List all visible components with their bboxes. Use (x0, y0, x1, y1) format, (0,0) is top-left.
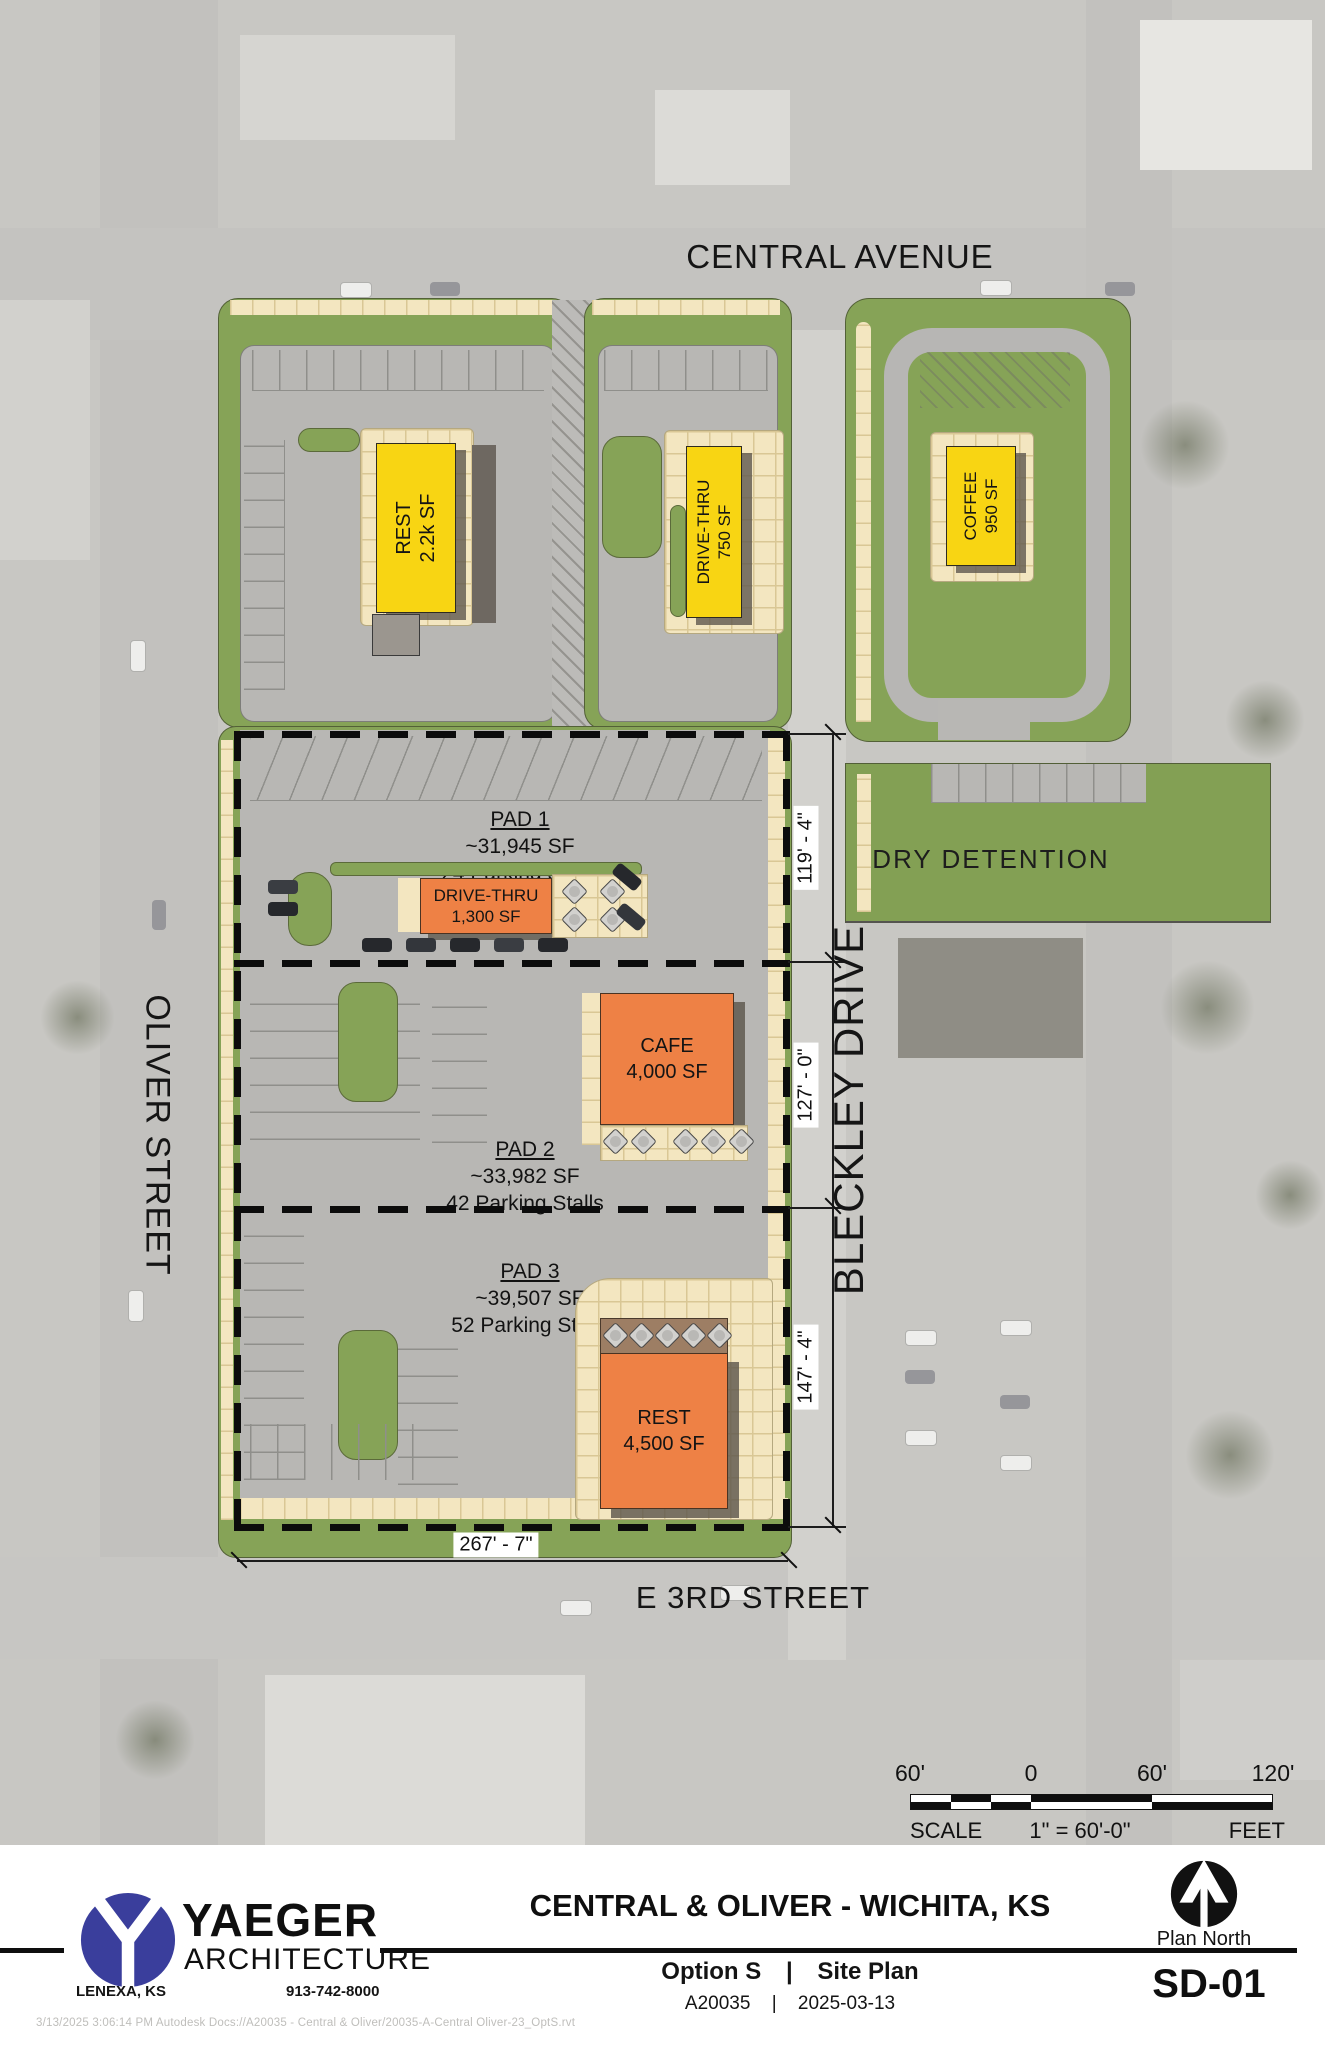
building-drive-thru-pad1-label: DRIVE-THRU 1,300 SF (421, 879, 551, 933)
aerial-building (655, 90, 790, 185)
building-size: 2.2k SF (416, 494, 440, 563)
building-rest-large-label: REST 4,500 SF (601, 1354, 727, 1508)
car (905, 1430, 937, 1446)
car (560, 1600, 592, 1616)
building-drive-thru-pad1: DRIVE-THRU 1,300 SF (420, 878, 552, 934)
pad-area: ~31,945 SF (380, 833, 660, 860)
building-size: 4,500 SF (623, 1431, 704, 1457)
car (1000, 1320, 1032, 1336)
scale-ratio: 1" = 60'-0" (1029, 1818, 1130, 1844)
car (430, 282, 460, 296)
car (494, 938, 524, 952)
sidewalk (857, 774, 871, 912)
scale-bar-graphic (910, 1794, 1273, 1810)
tree (1225, 680, 1305, 760)
building-drive-thru-small: DRIVE-THRU 750 SF (686, 446, 742, 618)
parking-stalls (432, 998, 487, 1143)
street-label-e-3rd-street: E 3RD STREET (636, 1580, 870, 1616)
landscape-island (298, 428, 360, 452)
car (152, 900, 166, 930)
car (268, 880, 298, 894)
tree (1160, 960, 1255, 1055)
yaeger-logo (80, 1892, 176, 1988)
tree (40, 980, 115, 1055)
car (905, 1330, 937, 1346)
sheet-name: Site Plan (817, 1958, 918, 1985)
building-coffee-label: COFFEE 950 SF (960, 472, 1002, 541)
building-size: 750 SF (714, 480, 735, 585)
scale-word: SCALE (910, 1818, 982, 1844)
landscape-island (338, 982, 398, 1102)
project-title: CENTRAL & OLIVER - WICHITA, KS (480, 1888, 1100, 1924)
building-sidewalk (398, 878, 422, 932)
sidewalk-west (221, 740, 233, 1520)
parking-stalls (931, 764, 1146, 803)
dim-pad2-depth: 127' - 0" (794, 1042, 819, 1127)
number-date-line: A20035 | 2025-03-13 (480, 1993, 1100, 2015)
plan-north-icon (1168, 1858, 1240, 1930)
parking-stalls (244, 440, 285, 690)
pad-name: PAD 1 (380, 806, 660, 833)
option-sheet-line: Option S | Site Plan (480, 1958, 1100, 1986)
landscape-island (670, 505, 686, 617)
dry-detention-label: DRY DETENTION (846, 844, 1136, 875)
sheet-number: SD-01 (1124, 1962, 1294, 2007)
car (130, 640, 146, 672)
parking-stalls (250, 1424, 430, 1480)
firm-city: LENEXA, KS (76, 1983, 166, 2000)
firm-phone: 913-742-8000 (286, 1983, 379, 2000)
tree (1185, 1410, 1275, 1500)
building-sidewalk (582, 993, 600, 1145)
option-label: Option S (661, 1958, 761, 1985)
car (1000, 1395, 1030, 1409)
title-block: YAEGER ARCHITECTURE LENEXA, KS 913-742-8… (0, 1845, 1325, 2048)
building-rest-small: REST 2.2k SF (376, 443, 456, 613)
scale-bar-row (911, 1795, 1272, 1802)
trash-enclosure (372, 614, 420, 656)
aerial-building (1140, 20, 1312, 170)
car (1000, 1455, 1032, 1471)
dim-pad1-depth: 119' - 4" (794, 806, 819, 890)
tree (1255, 1160, 1325, 1230)
car (980, 280, 1012, 296)
pad-divider-2 (234, 1206, 790, 1213)
scale-tick-label: 120' (1252, 1760, 1295, 1787)
parking-stalls (252, 350, 544, 391)
scale-tick-label: 60' (1137, 1760, 1167, 1787)
drive-thru-lane-shadow (472, 445, 496, 623)
building-cafe-label: CAFE 4,000 SF (601, 994, 733, 1124)
firm-type: ARCHITECTURE (184, 1943, 431, 1977)
building-name: DRIVE-THRU (693, 480, 714, 585)
dim-line-horizontal (237, 1560, 788, 1562)
property-line-north (234, 731, 790, 738)
dry-detention-area: DRY DETENTION (845, 763, 1271, 923)
car (340, 282, 372, 298)
sidewalk (230, 300, 560, 315)
separator: | (786, 1958, 793, 1985)
angled-parking-stalls (250, 736, 762, 801)
car (450, 938, 480, 952)
car (128, 1290, 144, 1322)
sidewalk (592, 300, 780, 315)
building-drive-thru-small-label: DRIVE-THRU 750 SF (693, 480, 735, 585)
aerial-building (0, 300, 90, 560)
pad-area: ~33,982 SF (380, 1163, 670, 1190)
building-name: REST (392, 494, 416, 563)
building-size: 4,000 SF (626, 1059, 707, 1085)
building-name: REST (637, 1405, 690, 1431)
dim-pad3-depth: 147' - 4" (794, 1324, 819, 1409)
loop-exit-stub (938, 700, 1030, 740)
car (905, 1370, 935, 1384)
site-plan-sheet: REST 2.2k SF DRIVE-THRU 750 SF (0, 0, 1325, 2048)
building-rest-large: REST 4,500 SF (600, 1353, 728, 1509)
pad-divider-1 (234, 960, 790, 967)
street-label-central-avenue: CENTRAL AVENUE (560, 238, 1120, 276)
dim-site-width: 267' - 7" (453, 1533, 538, 1558)
street-label-oliver-street: OLIVER STREET (138, 994, 177, 1275)
sidewalk (856, 322, 871, 722)
loop-hatch (920, 352, 1070, 408)
sheet-date: 2025-03-13 (798, 1993, 895, 2014)
parking-stalls (604, 350, 768, 391)
car (268, 902, 298, 916)
tree (1140, 400, 1230, 490)
aerial-building (898, 938, 1083, 1058)
building-rest-small-label: REST 2.2k SF (392, 494, 440, 563)
building-name: DRIVE-THRU (434, 885, 539, 906)
car (538, 938, 568, 952)
project-number: A20035 (685, 1993, 751, 2014)
scale-bar-row (911, 1802, 1272, 1809)
file-path-note: 3/13/2025 3:06:14 PM Autodesk Docs://A20… (36, 2017, 575, 2029)
landscape-island (602, 436, 662, 558)
aerial-building (265, 1675, 585, 1860)
building-size: 1,300 SF (452, 906, 521, 927)
street-label-bleckley-drive: BLECKLEY DRIVE (825, 925, 873, 1295)
scale-bar: 60' 0 60' 120' SCALE 1" = 60'-0" FEET (890, 1760, 1285, 1845)
car (1105, 282, 1135, 296)
building-name: CAFE (640, 1033, 693, 1059)
property-line-south (234, 1524, 790, 1531)
plan-north-label: Plan North (1124, 1928, 1284, 1951)
building-coffee: COFFEE 950 SF (946, 446, 1016, 566)
scale-units-word: FEET (1229, 1818, 1285, 1844)
scale-tick-label: 60' (895, 1760, 925, 1787)
building-cafe: CAFE 4,000 SF (600, 993, 734, 1125)
aerial-building (240, 35, 455, 140)
separator: | (772, 1993, 777, 2014)
building-size: 950 SF (981, 472, 1002, 541)
property-line-west (234, 731, 241, 1531)
rule-left (0, 1948, 64, 1953)
scale-tick-label: 0 (1025, 1760, 1038, 1787)
tree (115, 1700, 195, 1780)
car (406, 938, 436, 952)
firm-name: YAEGER (182, 1893, 378, 1947)
car (362, 938, 392, 952)
building-name: COFFEE (960, 472, 981, 541)
property-line-east (783, 731, 790, 1531)
